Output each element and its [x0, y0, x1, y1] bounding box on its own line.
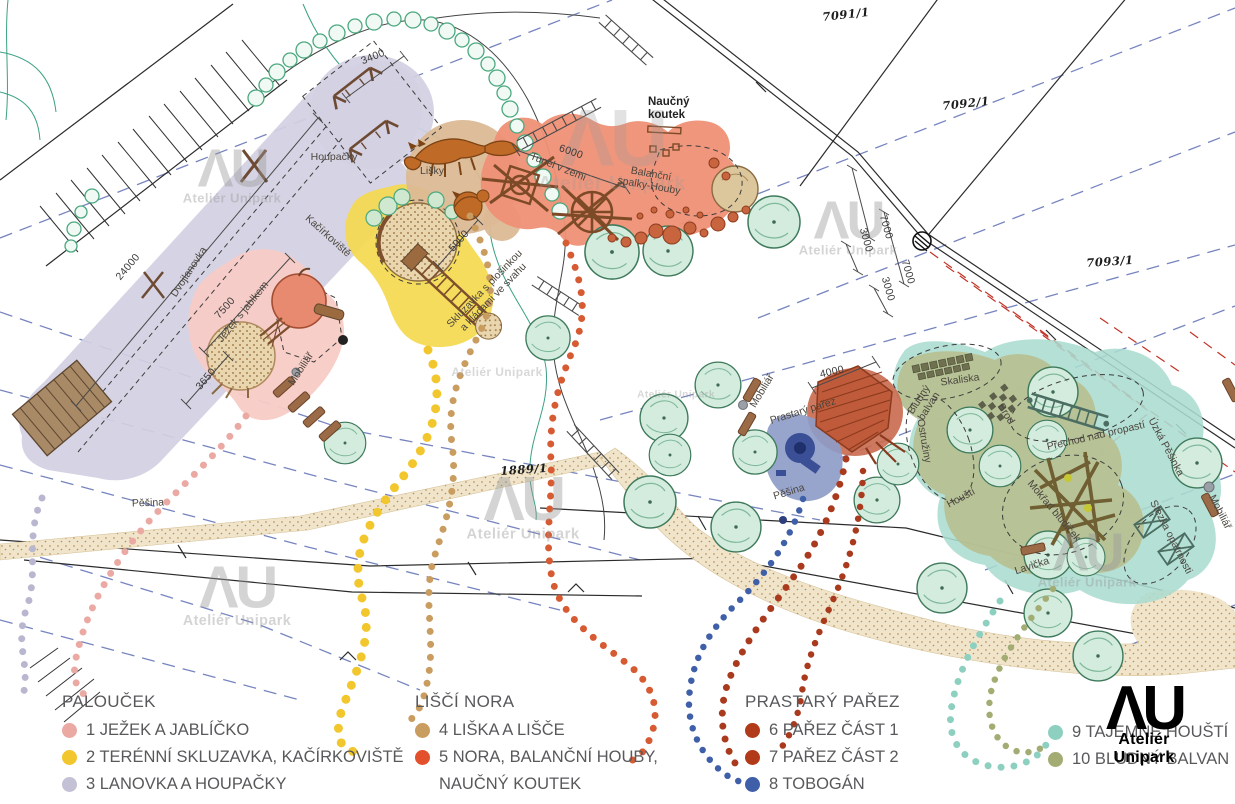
legend-header: PALOUČEK — [62, 692, 404, 710]
legend-dot — [1048, 725, 1063, 740]
legend-dot — [415, 723, 430, 738]
legend-item-line2: NAUČNÝ KOUTEK — [439, 771, 658, 798]
survey-point — [913, 232, 931, 251]
legend-group-lisci-nora: LIŠČÍ NORA 4 LIŠKA A LIŠČE 5 NORA, BALAN… — [415, 692, 658, 798]
legend-dot — [745, 777, 760, 792]
site-plan-sheet: ΛU Ateliér Unipark ΛU Ateliér Unipark ΛU… — [0, 0, 1235, 804]
trail-3-lanovka — [22, 498, 42, 700]
plan-drawing — [0, 0, 1235, 804]
label-pesina-left: Pěšina — [132, 496, 165, 509]
label-naucny-line1: Naučný — [648, 96, 690, 109]
label-lisky: Lišky — [420, 165, 444, 177]
legend-item-label: 4 LIŠKA A LIŠČE — [439, 721, 565, 740]
label-naucny-koutek: Naučný koutek — [648, 96, 690, 122]
legend-item-label: 8 TOBOGÁN — [769, 775, 865, 794]
legend-dot — [62, 750, 77, 765]
legend-item: 8 TOBOGÁN — [745, 771, 900, 798]
legend-dot — [415, 750, 430, 765]
legend-item-label: 1 JEŽEK A JABLÍČKO — [86, 721, 249, 740]
legend-item: 5 NORA, BALANČNÍ HOUBY, — [415, 744, 658, 771]
legend-item: 7 PAŘEZ ČÁST 2 — [745, 744, 900, 771]
legend-dot — [62, 723, 77, 738]
legend-item: 1 JEŽEK A JABLÍČKO — [62, 717, 404, 744]
au-logo-name: Ateliér Unipark — [1088, 731, 1200, 767]
legend-item: 6 PAŘEZ ČÁST 1 — [745, 717, 900, 744]
legend-group-prastary-parez: PRASTARÝ PAŘEZ 6 PAŘEZ ČÁST 1 7 PAŘEZ ČÁ… — [745, 692, 900, 798]
legend-dot — [1048, 752, 1063, 767]
legend-item-label: 6 PAŘEZ ČÁST 1 — [769, 721, 899, 740]
legend-item-label: NAUČNÝ KOUTEK — [439, 775, 581, 794]
legend-item: 4 LIŠKA A LIŠČE — [415, 717, 658, 744]
legend-dot — [745, 750, 760, 765]
legend-item: 2 TERÉNNÍ SKLUZAVKA, KAČÍRKOVIŠTĚ — [62, 744, 404, 771]
legend-header: LIŠČÍ NORA — [415, 692, 658, 710]
legend-item: 3 LANOVKA A HOUPAČKY — [62, 771, 404, 798]
label-houpacky: Houpačky — [311, 151, 358, 163]
legend-dot — [745, 723, 760, 738]
atelier-unipark-logo: ΛU Ateliér Unipark — [1088, 684, 1200, 767]
label-naucny-line2: koutek — [648, 109, 690, 122]
legend-item-label: 3 LANOVKA A HOUPAČKY — [86, 775, 287, 794]
legend-dot — [62, 777, 77, 792]
legend-item-label: 7 PAŘEZ ČÁST 2 — [769, 748, 899, 767]
legend-group-paloucek: PALOUČEK 1 JEŽEK A JABLÍČKO 2 TERÉNNÍ SK… — [62, 692, 404, 798]
legend-item-label: 5 NORA, BALANČNÍ HOUBY, — [439, 748, 658, 767]
au-logo-mark: ΛU — [1088, 684, 1200, 735]
legend-item-label: 2 TERÉNNÍ SKLUZAVKA, KAČÍRKOVIŠTĚ — [86, 748, 404, 767]
legend-header: PRASTARÝ PAŘEZ — [745, 692, 900, 710]
